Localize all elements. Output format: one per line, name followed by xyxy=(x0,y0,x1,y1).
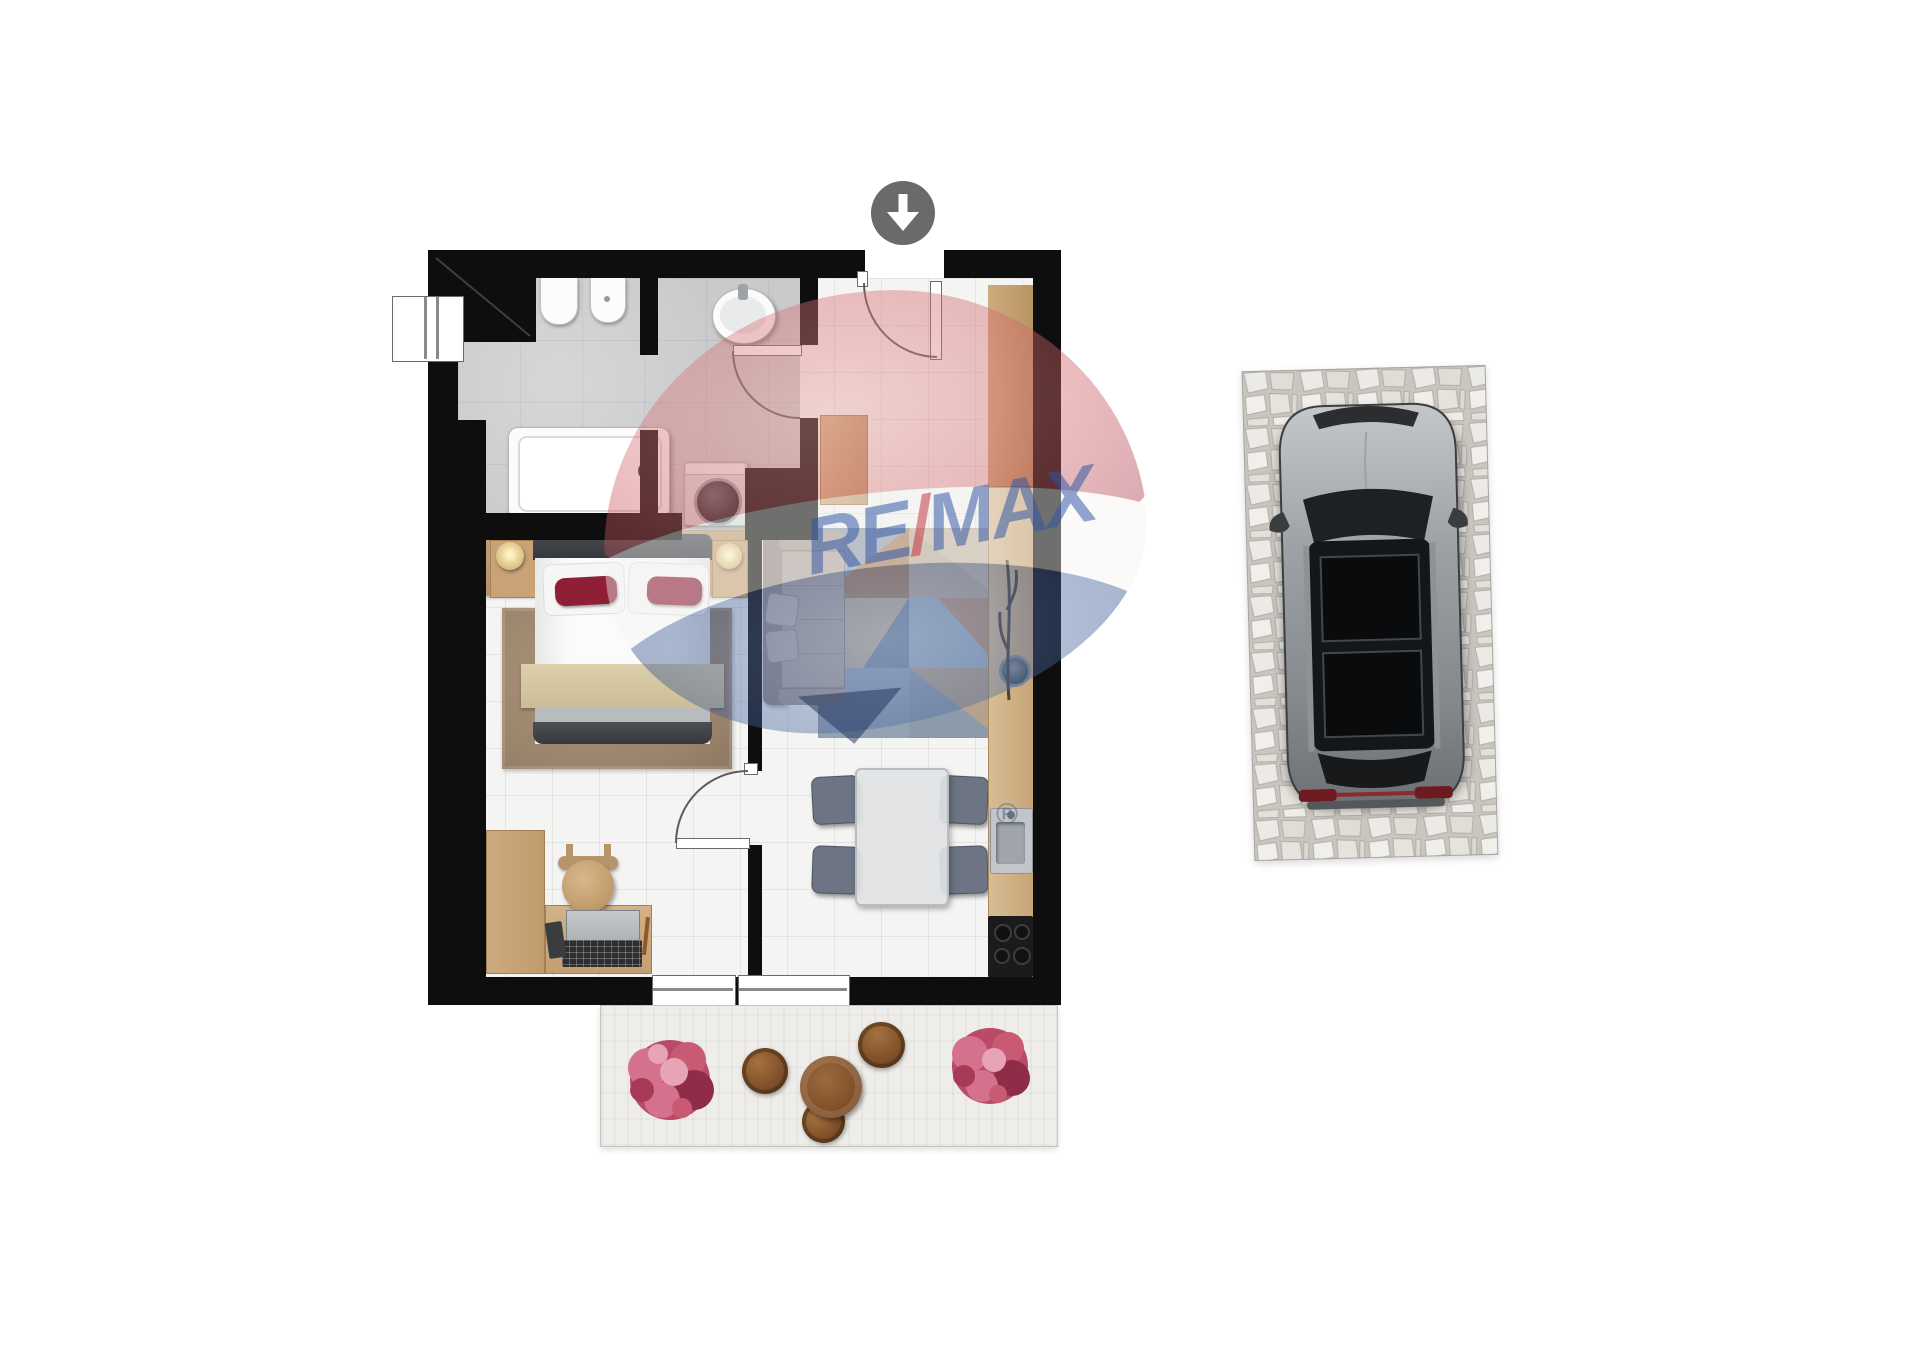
terrace-plant-left xyxy=(618,1028,726,1132)
registered-trademark: ® xyxy=(996,798,1018,832)
parking-space xyxy=(1242,365,1499,861)
car-taillight-left xyxy=(1299,789,1337,802)
car-sunroof-rear xyxy=(1323,651,1423,738)
entrance-marker xyxy=(871,181,935,245)
terrace-barrel-left xyxy=(742,1048,788,1094)
balloon-bottom-tip xyxy=(798,688,906,749)
parking-cobblestone xyxy=(1242,365,1499,861)
arrow-down-icon xyxy=(871,181,935,245)
car-sunroof-front xyxy=(1321,555,1421,642)
watermark-re: RE xyxy=(797,484,917,591)
car-top-view xyxy=(1266,402,1475,810)
terrace-table xyxy=(800,1056,862,1118)
floorplan-canvas: RE/MAX ® xyxy=(0,0,1920,1358)
terrace-plant-right xyxy=(940,1018,1040,1116)
car-taillight-right xyxy=(1415,786,1453,799)
